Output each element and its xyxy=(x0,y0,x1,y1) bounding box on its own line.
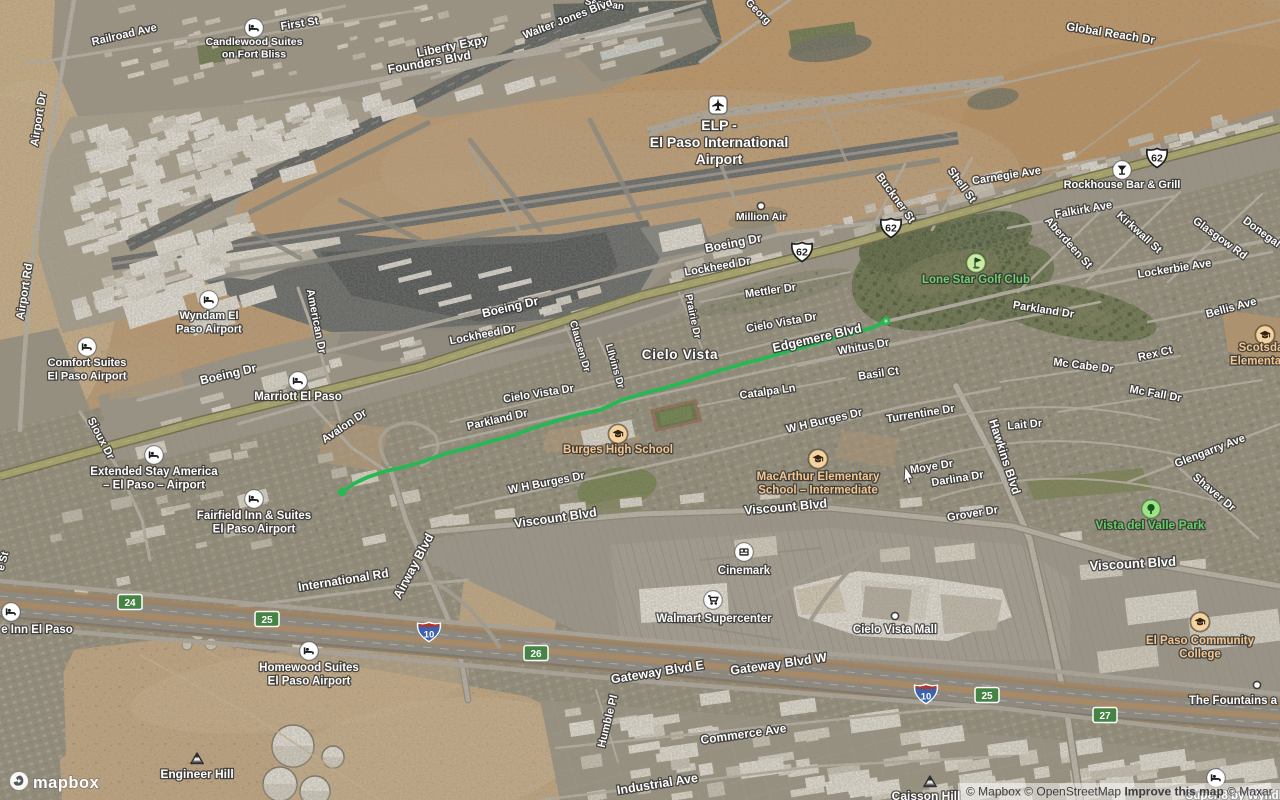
svg-text:Falkirk Ave: Falkirk Ave xyxy=(1054,199,1113,221)
svg-text:Million Air: Million Air xyxy=(736,211,786,223)
svg-text:LIlvins Dr: LIlvins Dr xyxy=(603,343,626,390)
svg-text:Viscount Blvd: Viscount Blvd xyxy=(513,505,597,530)
svg-text:Mc Cabe Dr: Mc Cabe Dr xyxy=(1053,356,1115,375)
svg-text:Boeing Dr: Boeing Dr xyxy=(704,231,763,256)
svg-text:Paso Airport: Paso Airport xyxy=(176,324,242,336)
svg-text:Turrentine Dr: Turrentine Dr xyxy=(886,403,957,426)
svg-text:Fairfield Inn & Suites: Fairfield Inn & Suites xyxy=(197,510,311,522)
svg-text:Comfort Suites: Comfort Suites xyxy=(48,357,127,369)
svg-text:Humble Pl: Humble Pl xyxy=(596,694,621,749)
svg-text:Viscount Blvd: Viscount Blvd xyxy=(1089,554,1176,574)
svg-text:Burges High School: Burges High School xyxy=(563,444,673,456)
svg-text:Airway Blvd: Airway Blvd xyxy=(390,531,436,601)
svg-text:e St: e St xyxy=(0,550,12,572)
svg-text:mapbox: mapbox xyxy=(33,774,100,792)
svg-text:Gateway Blvd W: Gateway Blvd W xyxy=(729,650,827,677)
svg-text:Parkland Dr: Parkland Dr xyxy=(466,407,530,433)
svg-text:Walmart Supercenter: Walmart Supercenter xyxy=(656,613,772,625)
svg-text:© Mapbox © OpenStreetMap Impro: © Mapbox © OpenStreetMap Improve this ma… xyxy=(966,785,1273,799)
svg-text:Industrial Ave: Industrial Ave xyxy=(616,771,699,798)
svg-text:The Fountains a: The Fountains a xyxy=(1189,695,1278,707)
svg-text:Engineer Hill: Engineer Hill xyxy=(160,767,233,781)
svg-text:26: 26 xyxy=(530,649,542,660)
svg-text:Boeing Dr: Boeing Dr xyxy=(481,294,540,321)
svg-text:Mettler Dr: Mettler Dr xyxy=(744,281,797,300)
svg-text:Elementary: Elementary xyxy=(1230,356,1280,368)
svg-text:MacArthur Elementary: MacArthur Elementary xyxy=(757,471,880,483)
svg-text:Commerce Ave: Commerce Ave xyxy=(700,721,788,747)
svg-text:International Rd: International Rd xyxy=(297,566,389,594)
svg-text:El Paso Airport: El Paso Airport xyxy=(268,676,351,688)
svg-text:Clausen Dr: Clausen Dr xyxy=(567,319,592,373)
svg-text:Lockheed Dr: Lockheed Dr xyxy=(449,323,517,348)
svg-text:Extended Stay America: Extended Stay America xyxy=(90,466,218,478)
svg-text:Rockhouse Bar & Grill: Rockhouse Bar & Grill xyxy=(1064,179,1181,191)
svg-text:10: 10 xyxy=(424,629,435,640)
svg-text:62: 62 xyxy=(885,223,897,235)
svg-text:Candlewood Suites: Candlewood Suites xyxy=(206,36,303,48)
svg-text:Prairie Dr: Prairie Dr xyxy=(682,293,702,339)
svg-text:– El Paso – Airport: – El Paso – Airport xyxy=(103,480,205,492)
svg-text:Avalon Dr: Avalon Dr xyxy=(320,407,370,446)
svg-text:Sioux Dr: Sioux Dr xyxy=(85,416,117,462)
svg-text:Cielo Vista: Cielo Vista xyxy=(642,347,718,362)
svg-text:Cielo Vista Dr: Cielo Vista Dr xyxy=(502,382,575,405)
svg-text:Vista del Valle Park: Vista del Valle Park xyxy=(1095,518,1205,532)
svg-text:Cinemark: Cinemark xyxy=(718,565,771,577)
svg-text:Scotsda: Scotsda xyxy=(1239,342,1280,354)
svg-text:First St: First St xyxy=(280,15,320,33)
svg-text:Lone Star Golf Club: Lone Star Golf Club xyxy=(922,274,1030,286)
svg-text:Global Reach Dr: Global Reach Dr xyxy=(1065,21,1156,47)
svg-text:10: 10 xyxy=(921,691,932,702)
svg-text:Mc Fall Dr: Mc Fall Dr xyxy=(1129,384,1184,405)
svg-text:Caisson Hill: Caisson Hill xyxy=(892,789,961,800)
svg-text:Catalpa Ln: Catalpa Ln xyxy=(739,382,797,402)
svg-text:Viscount Blvd: Viscount Blvd xyxy=(744,496,828,517)
svg-text:El Paso Airport: El Paso Airport xyxy=(47,371,126,383)
svg-text:Aberdeen St: Aberdeen St xyxy=(1042,215,1094,271)
svg-text:Basil Ct: Basil Ct xyxy=(857,365,900,383)
svg-text:School – Intermediate: School – Intermediate xyxy=(758,485,878,497)
svg-text:Buckner St: Buckner St xyxy=(874,171,918,225)
svg-text:Shaver Dr: Shaver Dr xyxy=(1190,471,1238,514)
svg-text:25: 25 xyxy=(981,691,993,702)
svg-text:27: 27 xyxy=(1099,711,1111,722)
svg-text:American Dr: American Dr xyxy=(304,288,328,355)
svg-text:Georg: Georg xyxy=(743,0,773,27)
svg-text:e Inn El Paso: e Inn El Paso xyxy=(1,624,73,636)
svg-text:El Paso International: El Paso International xyxy=(650,134,788,150)
svg-text:Kirkwall St: Kirkwall St xyxy=(1114,209,1164,256)
svg-text:Rex Ct: Rex Ct xyxy=(1137,344,1174,364)
svg-text:Lockheed Dr: Lockheed Dr xyxy=(684,255,752,279)
svg-text:Parkland Dr: Parkland Dr xyxy=(1012,299,1076,321)
svg-text:Cielo Vista Dr: Cielo Vista Dr xyxy=(745,311,818,335)
svg-text:Lockerbie Ave: Lockerbie Ave xyxy=(1137,257,1212,280)
svg-text:Walter Jones Blvd: Walter Jones Blvd xyxy=(521,0,614,42)
svg-text:Glengarry Ave: Glengarry Ave xyxy=(1173,432,1247,470)
svg-text:25: 25 xyxy=(261,615,273,626)
svg-text:62: 62 xyxy=(796,247,808,259)
svg-text:Whitus Dr: Whitus Dr xyxy=(837,337,891,358)
svg-text:Gateway Blvd E: Gateway Blvd E xyxy=(610,658,705,687)
svg-text:Bellis Ave: Bellis Ave xyxy=(1205,296,1258,321)
svg-text:Boeing Dr: Boeing Dr xyxy=(199,361,258,388)
svg-text:on Fort Bliss: on Fort Bliss xyxy=(222,49,286,61)
svg-text:Grover Dr: Grover Dr xyxy=(946,504,999,524)
svg-text:62: 62 xyxy=(1151,153,1163,165)
svg-text:Cielo Vista Mall: Cielo Vista Mall xyxy=(853,624,937,636)
svg-text:W H Burges Dr: W H Burges Dr xyxy=(785,406,864,435)
svg-text:Airport: Airport xyxy=(696,151,743,167)
svg-text:Marriott El Paso: Marriott El Paso xyxy=(254,391,342,403)
svg-text:Homewood Suites: Homewood Suites xyxy=(259,662,359,674)
svg-text:Airport Rd: Airport Rd xyxy=(15,263,36,321)
svg-text:Carnegie Ave: Carnegie Ave xyxy=(971,165,1042,188)
svg-text:Railroad Ave: Railroad Ave xyxy=(91,22,158,49)
svg-text:El Paso Community: El Paso Community xyxy=(1146,635,1255,647)
svg-text:W H Burges Dr: W H Burges Dr xyxy=(507,470,586,497)
svg-text:College: College xyxy=(1179,649,1221,661)
svg-text:ELP -: ELP - xyxy=(701,117,737,133)
svg-text:El Paso Airport: El Paso Airport xyxy=(213,524,296,536)
svg-text:24: 24 xyxy=(124,598,136,609)
svg-text:Lait Dr: Lait Dr xyxy=(1007,417,1043,432)
svg-text:Airport Dr: Airport Dr xyxy=(29,91,49,147)
svg-text:Wyndam El: Wyndam El xyxy=(179,310,238,322)
svg-text:Glasgow Rd: Glasgow Rd xyxy=(1191,215,1249,262)
